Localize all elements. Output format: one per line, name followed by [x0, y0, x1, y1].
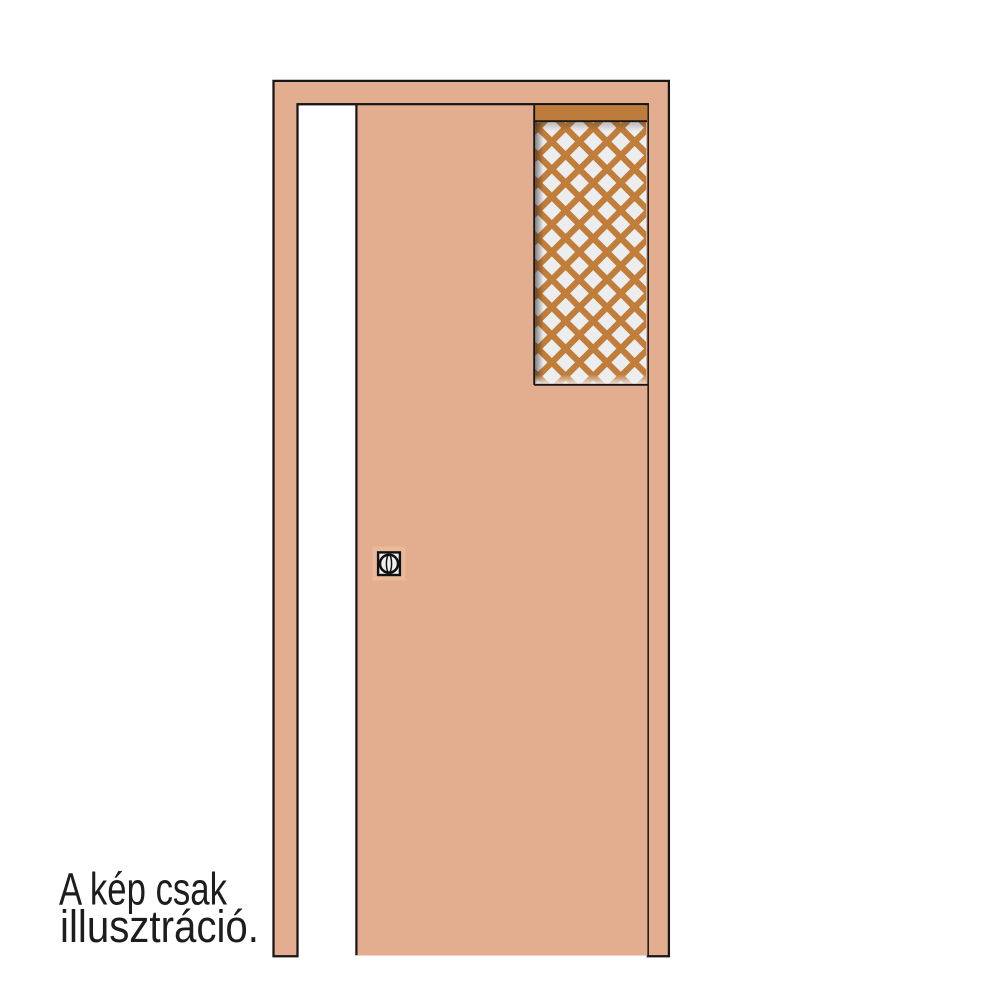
- svg-text:illusztráció.: illusztráció.: [60, 901, 259, 952]
